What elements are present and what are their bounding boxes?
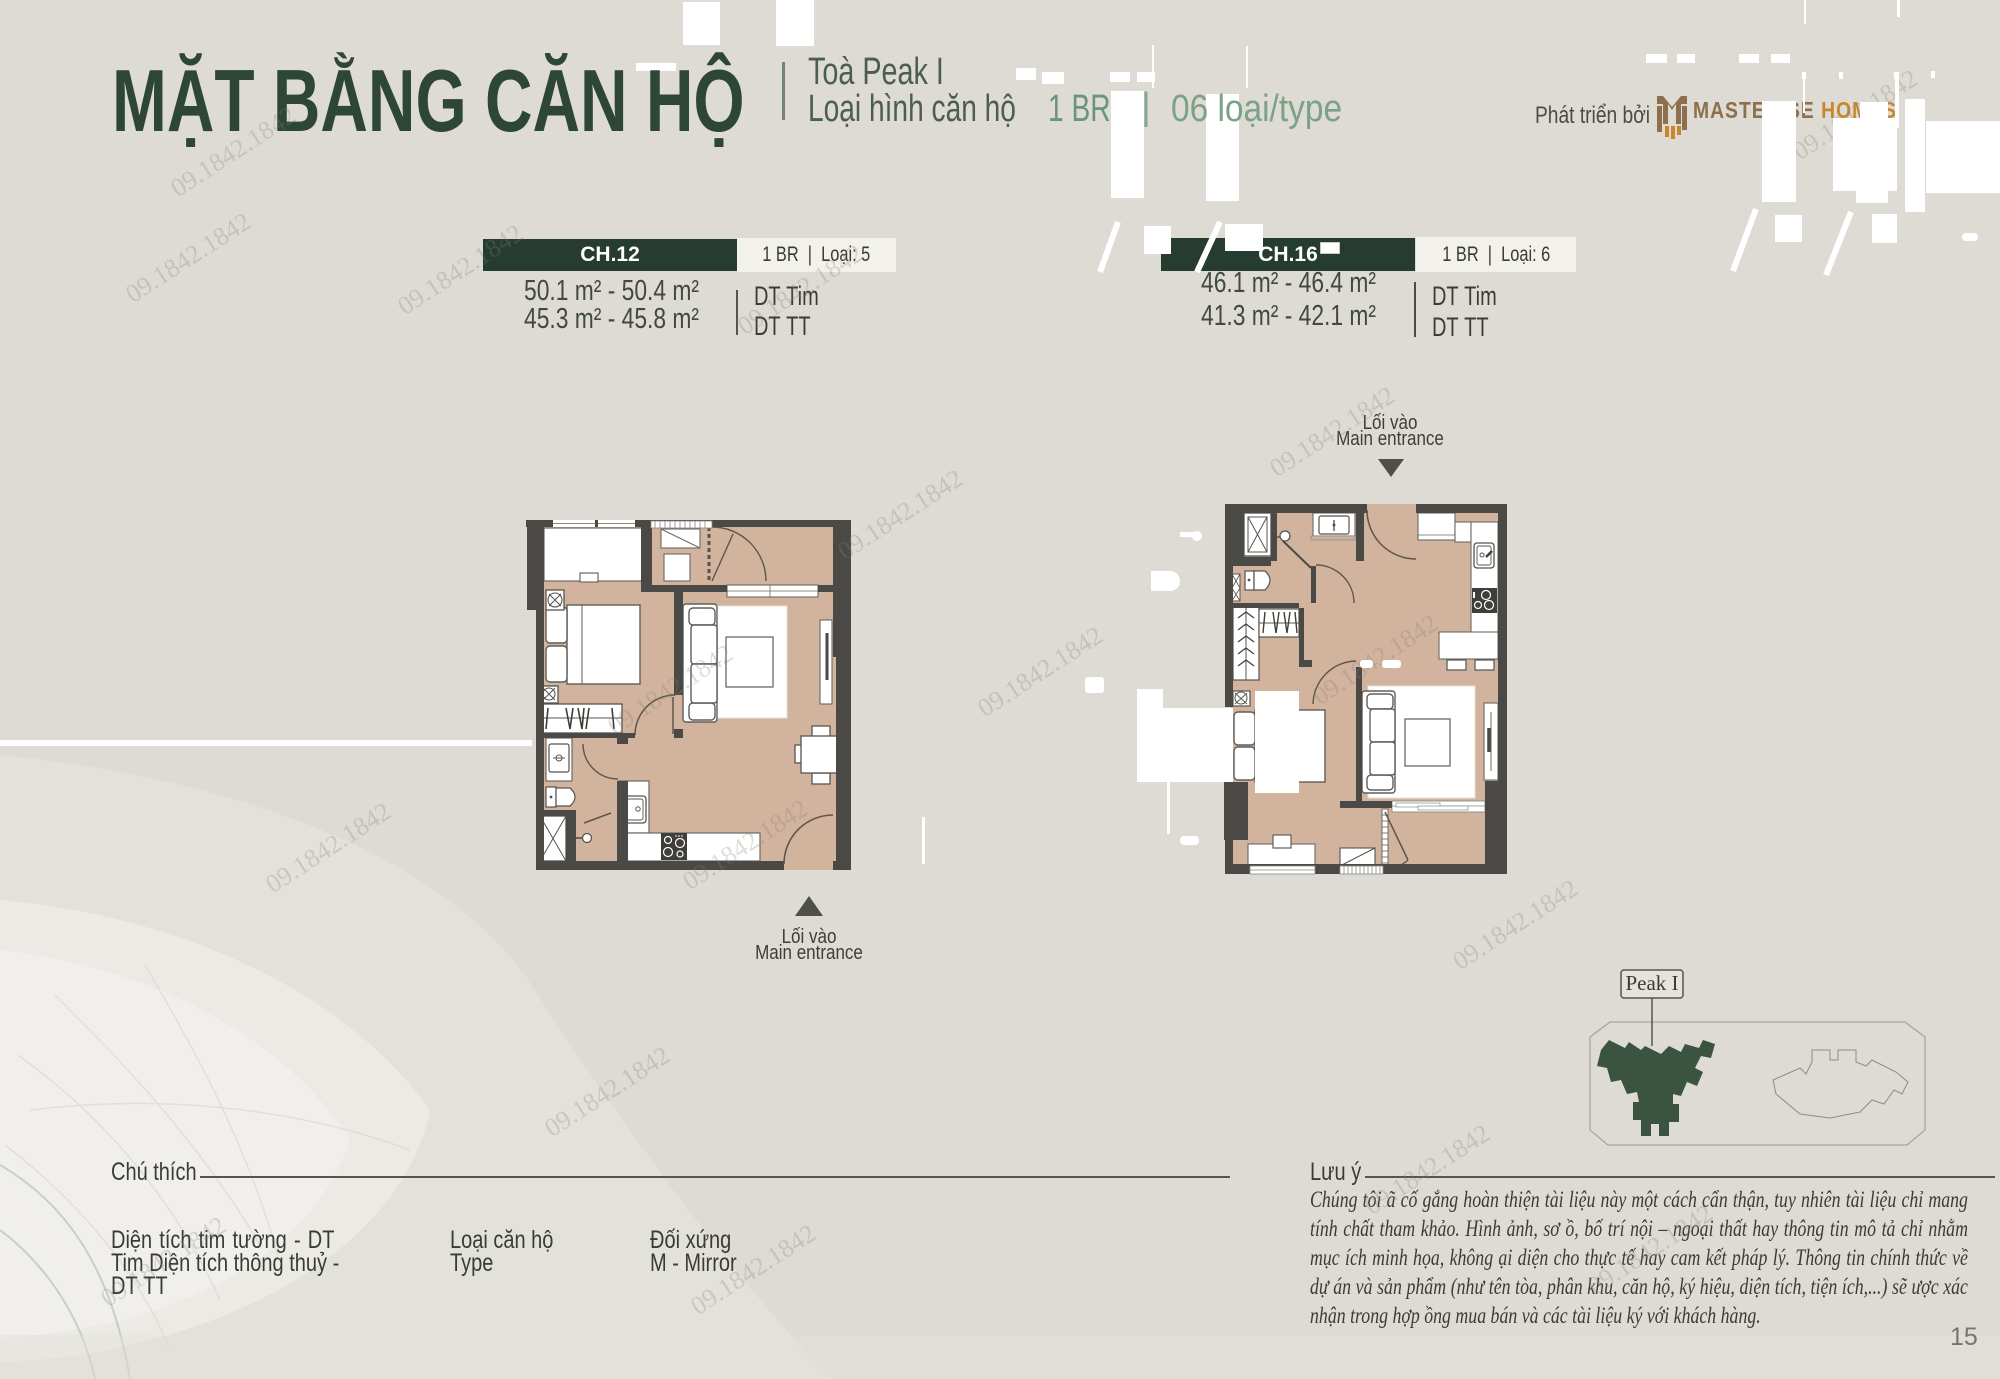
svg-text:Peak I: Peak I bbox=[1625, 971, 1678, 995]
